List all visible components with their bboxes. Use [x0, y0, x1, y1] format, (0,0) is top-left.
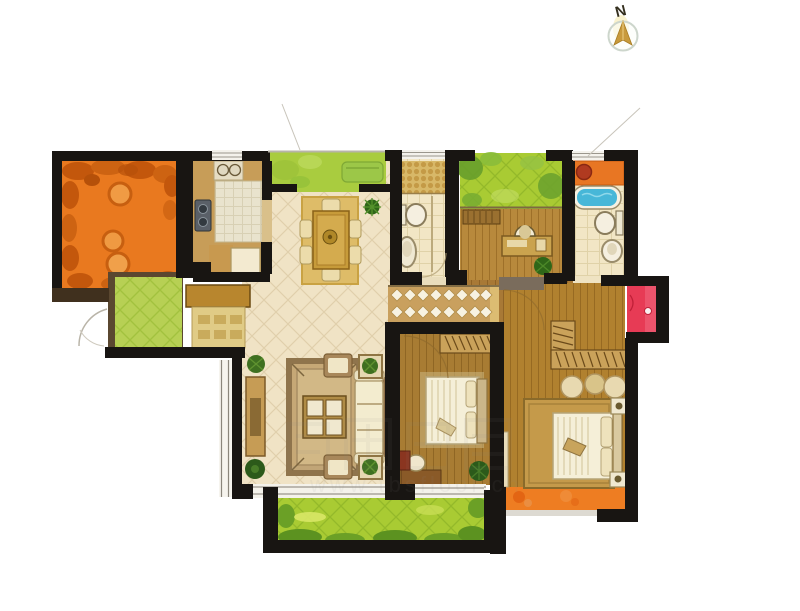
- svg-text:www.tbsfloor.cn: www.tbsfloor.cn: [309, 472, 523, 497]
